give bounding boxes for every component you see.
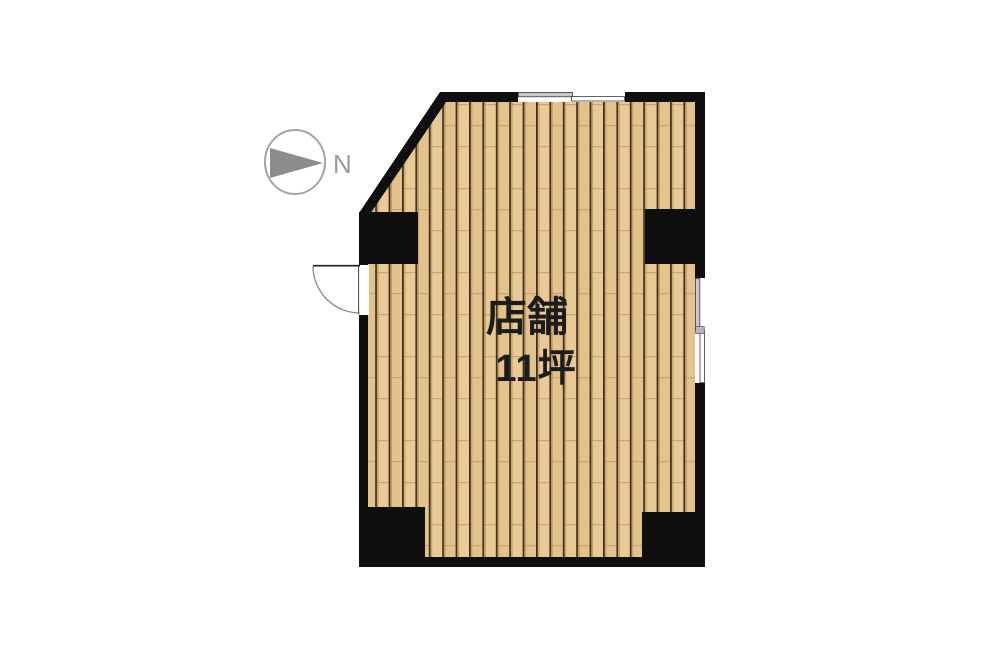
floorplan-canvas: N 店舗 11坪 <box>0 0 1000 667</box>
door-swing-arc <box>313 266 360 313</box>
room-label: 店舗 <box>486 294 568 340</box>
room-area-label: 11坪 <box>495 348 576 390</box>
pillar-top-left <box>359 212 418 264</box>
top-window <box>518 92 625 102</box>
pillar-top-right <box>645 209 705 264</box>
compass-needle-icon <box>270 148 323 178</box>
door-opening <box>358 265 369 315</box>
north-label: N <box>333 149 352 179</box>
entrance-door <box>313 265 369 315</box>
floorplan-image: N 店舗 11坪 <box>0 0 1000 667</box>
pillar-bottom-right <box>642 512 705 567</box>
right-window <box>695 278 705 383</box>
pillar-bottom-left <box>359 507 425 567</box>
north-compass: N <box>265 130 352 194</box>
